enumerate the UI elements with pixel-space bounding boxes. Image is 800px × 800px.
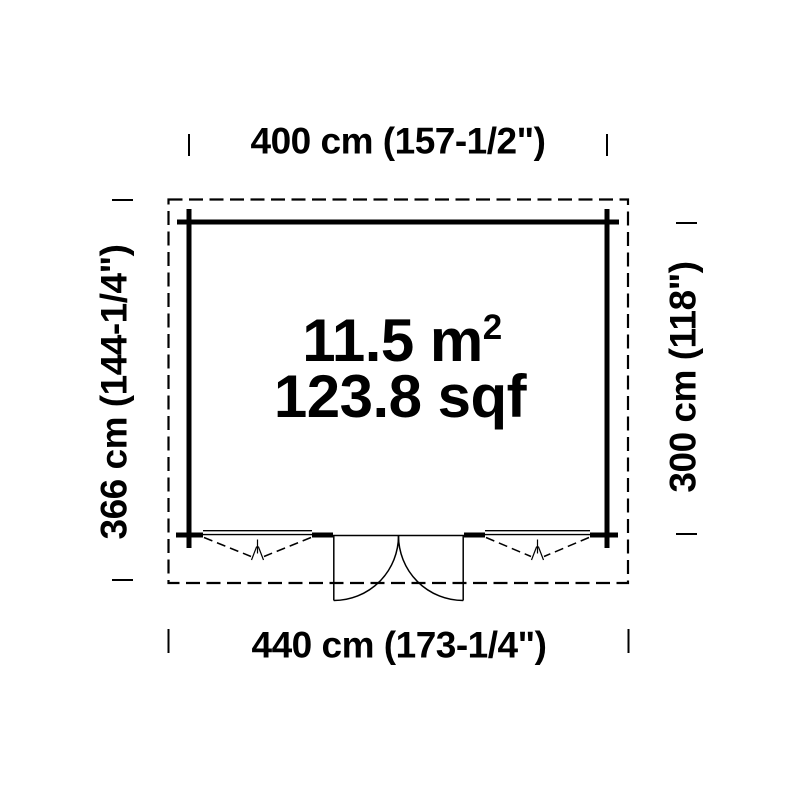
dimension-label-left: 366 cm (144-1/4") <box>96 245 133 540</box>
dimension-label-top: 400 cm (157-1/2") <box>251 123 546 160</box>
area-metric: 11.5 m2 <box>302 311 501 371</box>
window-right-tilt-dash-1 <box>486 538 531 557</box>
window-right-icon <box>485 531 590 560</box>
window-right-handle-leg-2 <box>538 547 543 561</box>
floor-plan: 400 cm (157-1/2") 440 cm (173-1/4") 366 … <box>0 0 800 800</box>
dimension-label-bottom: 440 cm (173-1/4") <box>252 627 547 664</box>
window-left-tilt-dash-1 <box>204 538 251 557</box>
dimension-label-right: 300 cm (118") <box>665 261 702 492</box>
window-left-handle-leg-1 <box>252 547 257 561</box>
window-left-tilt-dash-2 <box>264 538 311 557</box>
window-right-handle-leg-1 <box>532 547 537 561</box>
window-left-handle-leg-2 <box>258 547 263 561</box>
window-right-tilt-dash-2 <box>544 538 589 557</box>
door-swing-arc-left <box>334 536 399 601</box>
area-metric-superscript: 2 <box>483 308 502 347</box>
area-imperial: 123.8 sqf <box>274 367 526 427</box>
door-swing-arc-right <box>399 536 464 601</box>
double-door-icon <box>333 536 464 601</box>
window-left-icon <box>203 531 312 560</box>
